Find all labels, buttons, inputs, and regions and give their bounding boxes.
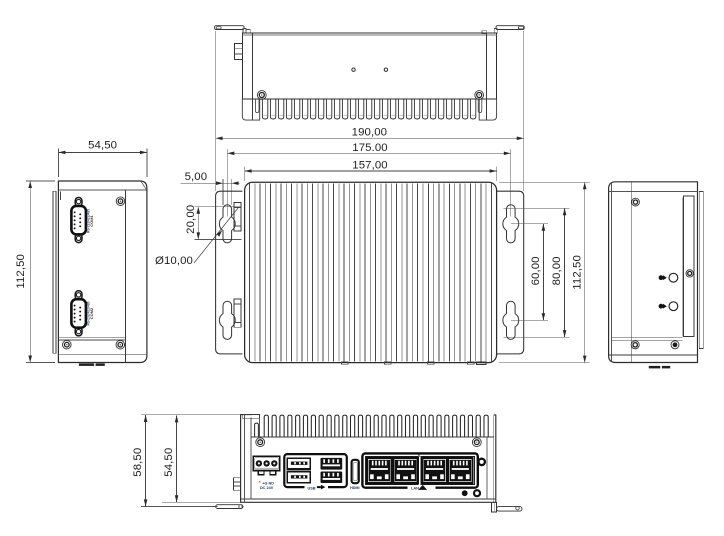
svg-text:20,00: 20,00: [185, 205, 197, 234]
svg-text:58,50: 58,50: [132, 448, 144, 477]
svg-text:Ø10,00: Ø10,00: [155, 255, 193, 267]
svg-text:+G ND: +G ND: [262, 481, 274, 485]
svg-text:60,00: 60,00: [530, 256, 542, 285]
svg-text:LAN: LAN: [411, 486, 419, 491]
svg-text:80,00: 80,00: [551, 256, 563, 285]
svg-text:USB: USB: [307, 486, 315, 490]
svg-text:54,50: 54,50: [163, 448, 175, 477]
svg-text:HDMI: HDMI: [350, 486, 359, 490]
svg-text:DC 24V: DC 24V: [260, 486, 274, 490]
svg-text:112,50: 112,50: [15, 254, 27, 289]
svg-text:175.00: 175.00: [352, 142, 387, 154]
svg-text:COM1: COM1: [89, 214, 94, 226]
svg-text:COM2: COM2: [89, 307, 94, 319]
svg-text:5,00: 5,00: [185, 171, 208, 183]
svg-text:112,50: 112,50: [571, 255, 583, 290]
svg-text:157,00: 157,00: [352, 160, 387, 172]
svg-text:190,00: 190,00: [352, 127, 387, 139]
svg-text:54,50: 54,50: [88, 140, 117, 152]
